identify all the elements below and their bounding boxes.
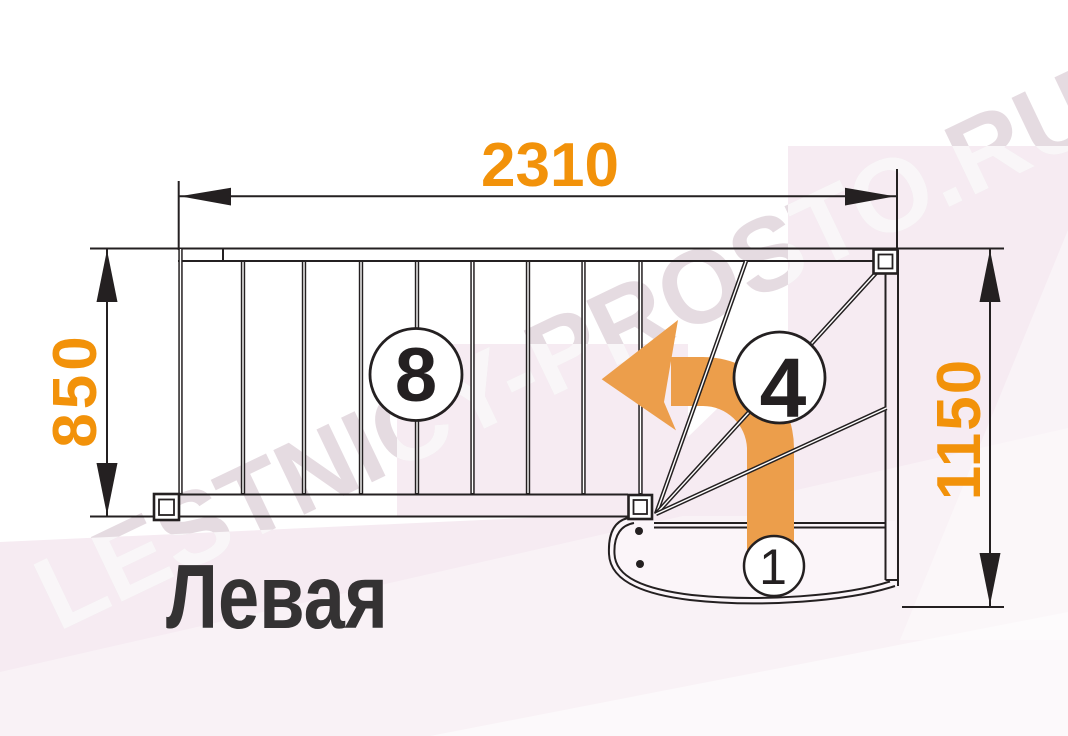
svg-text:2310: 2310	[481, 131, 619, 200]
svg-text:4: 4	[760, 341, 807, 435]
svg-text:1: 1	[759, 539, 787, 595]
svg-text:850: 850	[41, 332, 110, 447]
svg-text:8: 8	[395, 333, 437, 418]
svg-text:1150: 1150	[925, 358, 994, 501]
svg-text:Левая: Левая	[166, 547, 388, 648]
